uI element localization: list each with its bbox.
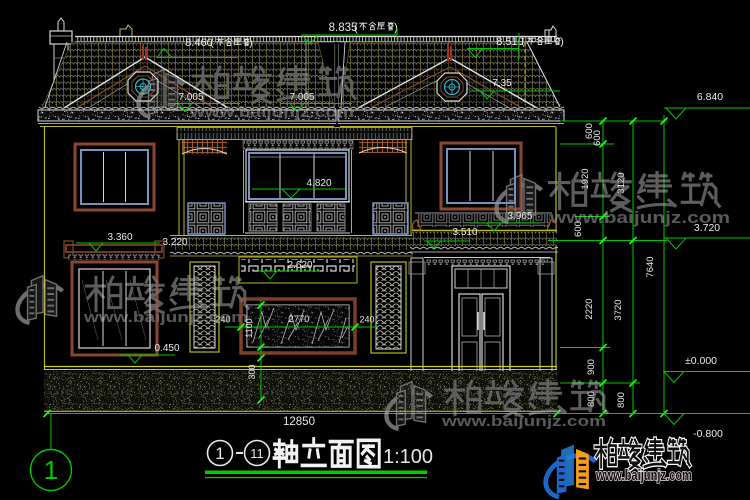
svg-text:(: ( [354, 22, 358, 34]
svg-text:8.510: 8.510 [496, 36, 524, 48]
svg-text:www.baijunjz.com: www.baijunjz.com [441, 413, 606, 430]
svg-text:www.baijunjz.com: www.baijunjz.com [83, 309, 248, 326]
svg-text:www.baijunjz.com: www.baijunjz.com [549, 208, 730, 227]
svg-text:(: ( [521, 36, 525, 48]
svg-text:4.820: 4.820 [306, 178, 331, 189]
svg-text:11: 11 [250, 446, 264, 461]
svg-text:3.220: 3.220 [162, 237, 187, 248]
svg-text:7.35: 7.35 [492, 78, 512, 89]
svg-text:-0.800: -0.800 [693, 428, 723, 440]
svg-text:): ) [560, 36, 564, 48]
svg-text:600: 600 [592, 130, 603, 146]
svg-text:3.510: 3.510 [452, 227, 477, 238]
svg-text:7.005: 7.005 [178, 92, 203, 103]
svg-text:240: 240 [359, 315, 374, 325]
svg-text:12850: 12850 [283, 416, 315, 428]
svg-text:): ) [249, 37, 253, 49]
svg-text:1:100: 1:100 [383, 446, 433, 468]
svg-text:3720: 3720 [613, 299, 624, 320]
svg-text:2220: 2220 [584, 298, 595, 319]
svg-text:6.840: 6.840 [697, 91, 723, 103]
svg-text:7640: 7640 [645, 256, 656, 277]
svg-text:8.460: 8.460 [185, 37, 213, 49]
svg-text:900: 900 [586, 359, 597, 375]
svg-text:0.450: 0.450 [154, 343, 179, 354]
svg-text:2770: 2770 [288, 314, 309, 325]
svg-text:800: 800 [616, 392, 627, 408]
svg-text:2.620: 2.620 [287, 260, 312, 271]
svg-text:1: 1 [215, 444, 224, 463]
svg-text:1: 1 [44, 455, 58, 485]
svg-text:www.baijunjz.com: www.baijunjz.com [595, 468, 692, 484]
svg-text:www.baijunjz.com: www.baijunjz.com [189, 104, 354, 121]
svg-text:3.360: 3.360 [107, 232, 132, 243]
svg-text:±0.000: ±0.000 [685, 355, 717, 367]
svg-text:300: 300 [247, 364, 257, 379]
svg-text:(: ( [210, 37, 214, 49]
svg-text:8.835: 8.835 [329, 22, 358, 34]
